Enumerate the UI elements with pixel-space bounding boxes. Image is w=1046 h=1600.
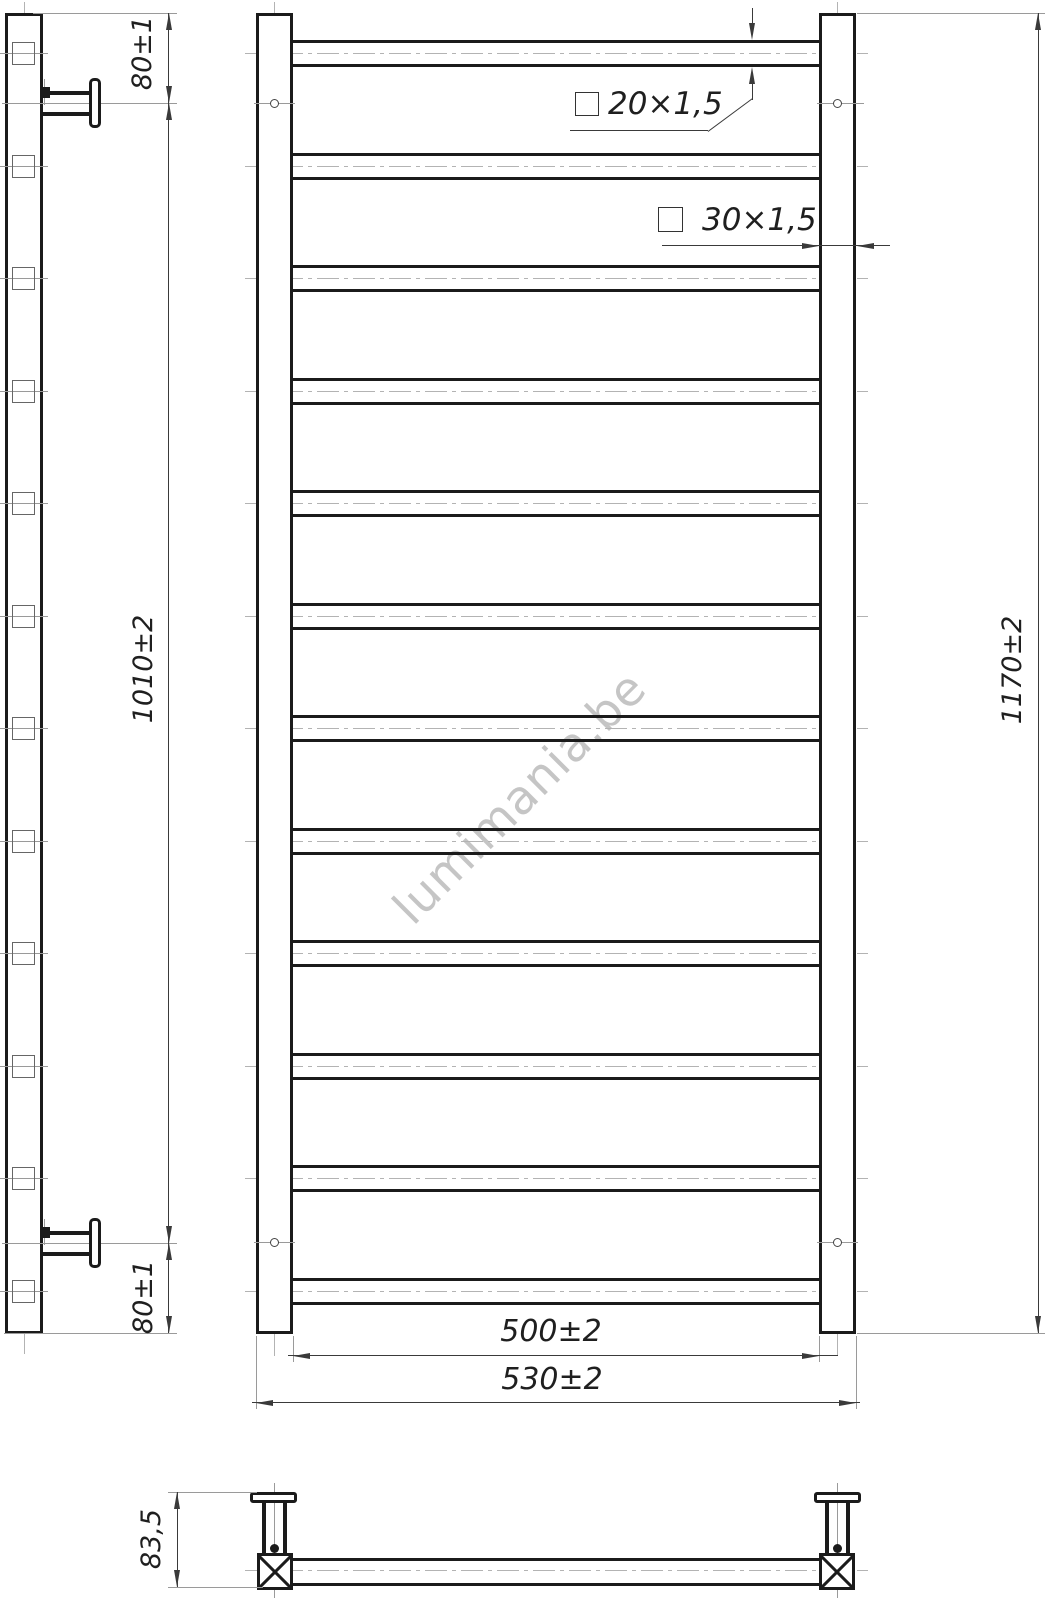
arrow-right <box>802 1353 819 1359</box>
rung-tube-spec-label: 20×1,5 <box>608 86 723 122</box>
left-post <box>256 13 293 1334</box>
bracket-top-arm-upper <box>43 91 92 95</box>
dim-outer-width-label: 530±2 <box>472 1363 632 1395</box>
rung-section-square <box>12 830 35 853</box>
bracket-bottom-screw <box>41 1227 50 1238</box>
rung-centerline <box>245 278 868 279</box>
rung-section-square <box>12 380 35 403</box>
extension-line <box>857 13 1045 14</box>
mounting-hole-bottom-left <box>270 1238 279 1247</box>
post-tube-spec-label: 30×1,5 <box>702 202 817 238</box>
rung-bottom-edge <box>293 964 819 967</box>
rung-bottom-edge <box>293 1189 819 1192</box>
arrow-down <box>166 1226 172 1243</box>
bracket-top-wall-flange <box>89 78 101 128</box>
x-brace <box>822 1556 852 1587</box>
rung-section-square <box>12 492 35 515</box>
rung-section-square <box>12 717 35 740</box>
rung-section-square <box>12 155 35 178</box>
plan-left-screw <box>270 1544 279 1553</box>
rung-top-edge <box>293 603 819 606</box>
rung-top-edge <box>293 828 819 831</box>
arrow-down <box>174 1570 180 1587</box>
bracket-top-screw <box>41 87 50 98</box>
rung-bottom-edge <box>293 852 819 855</box>
mounting-hole-bottom-right <box>833 1238 842 1247</box>
rung-top-edge <box>293 1053 819 1056</box>
extension-line <box>856 1336 857 1409</box>
rung-centerline <box>245 728 868 729</box>
arrow-up <box>174 1492 180 1509</box>
arrow-up <box>166 1243 172 1260</box>
arrow-up <box>749 67 755 84</box>
arrow-right <box>802 243 819 249</box>
drawing-sheet: lumimania.be <box>0 0 1046 1600</box>
dim-top-offset-label: 80±1 <box>126 0 158 133</box>
rung-section-square <box>12 1055 35 1078</box>
plan-right-post-section <box>819 1553 855 1590</box>
rung-centerline <box>245 53 868 54</box>
extension-line <box>256 1336 257 1409</box>
plan-left-stem <box>262 1502 266 1556</box>
rung-centerline <box>245 1066 868 1067</box>
rung-top-edge <box>293 153 819 156</box>
arrow-left <box>256 1400 273 1406</box>
side-post-tube <box>5 13 43 1334</box>
plan-right-screw <box>833 1544 842 1553</box>
arrow-down <box>1035 1316 1041 1333</box>
arrow-left <box>293 1353 310 1359</box>
dim-total-height-label: 1170±2 <box>996 590 1028 750</box>
rung-section-square <box>12 605 35 628</box>
dimension-line <box>1038 13 1039 1333</box>
rung-section-square <box>12 942 35 965</box>
rung-bottom-edge <box>293 627 819 630</box>
mounting-hole-top-right <box>833 99 842 108</box>
rung-centerline <box>245 1291 868 1292</box>
rung-top-edge <box>293 265 819 268</box>
arrow-down <box>166 1316 172 1333</box>
arrow-down <box>166 86 172 103</box>
rung-section-square <box>12 1167 35 1190</box>
watermark: lumimania.be <box>383 661 658 936</box>
rung-centerline <box>245 841 868 842</box>
plan-right-stem <box>846 1502 850 1556</box>
rung-bottom-edge <box>293 1077 819 1080</box>
rung-bottom-edge <box>293 177 819 180</box>
rung-bottom-edge <box>293 289 819 292</box>
rung-centerline <box>245 1178 868 1179</box>
rung-top-edge <box>293 40 819 43</box>
arrow-up <box>1035 13 1041 30</box>
x-brace <box>260 1556 290 1587</box>
bracket-top-arm-lower <box>43 112 92 116</box>
arrow-down <box>749 23 755 40</box>
rung-section-square <box>12 1280 35 1303</box>
rung-centerline <box>245 616 868 617</box>
rung-bottom-edge <box>293 739 819 742</box>
right-post <box>819 13 856 1334</box>
dimension-line <box>752 84 753 100</box>
plan-left-stem <box>283 1502 287 1556</box>
bracket-bottom-wall-flange <box>89 1218 101 1268</box>
rung-top-edge <box>293 378 819 381</box>
extension-line <box>168 1587 263 1588</box>
rung-bottom-edge <box>293 64 819 67</box>
rung-bottom-edge <box>293 402 819 405</box>
dimension-line <box>662 245 890 246</box>
bracket-bottom-arm-lower <box>43 1252 92 1256</box>
dimension-line <box>752 8 753 23</box>
rung-top-edge <box>293 715 819 718</box>
rung-centerline <box>245 503 868 504</box>
mounting-hole-top-left <box>270 99 279 108</box>
plan-left-wall-plate <box>250 1492 297 1503</box>
plan-left-post-section <box>257 1553 293 1590</box>
dimension-line <box>252 1402 860 1403</box>
rung-centerline <box>245 166 868 167</box>
arrow-left <box>857 243 874 249</box>
plan-crossbar-bottom-edge <box>293 1583 819 1586</box>
arrow-right <box>839 1400 856 1406</box>
extension-line <box>857 1333 1045 1334</box>
rung-centerline <box>245 953 868 954</box>
rung-bottom-edge <box>293 514 819 517</box>
square-tube-icon <box>658 207 683 232</box>
dimension-line <box>168 13 169 1333</box>
dim-bracket-span-label: 1010±2 <box>127 589 159 749</box>
rung-top-edge <box>293 1278 819 1281</box>
rung-centerline <box>245 391 868 392</box>
arrow-up <box>166 13 172 30</box>
dim-bottom-offset-label: 80±1 <box>127 1217 159 1377</box>
rung-section-square <box>12 267 35 290</box>
rung-bottom-edge <box>293 1302 819 1305</box>
rung-top-edge <box>293 1165 819 1168</box>
square-tube-icon <box>575 92 599 116</box>
extension-line <box>168 1492 257 1493</box>
plan-crossbar-top-edge <box>293 1558 819 1561</box>
dim-depth-label: 83,5 <box>135 1459 167 1600</box>
plan-right-wall-plate <box>814 1492 861 1503</box>
dim-inner-width-label: 500±2 <box>471 1315 631 1347</box>
dimension-line <box>288 1355 838 1356</box>
rung-section-square <box>12 42 35 65</box>
leader-underline <box>570 130 708 131</box>
plan-centerline <box>245 1570 868 1571</box>
bracket-bottom-arm-upper <box>43 1231 92 1235</box>
plan-right-stem <box>825 1502 829 1556</box>
arrow-up <box>166 103 172 120</box>
rung-top-edge <box>293 490 819 493</box>
rung-top-edge <box>293 940 819 943</box>
